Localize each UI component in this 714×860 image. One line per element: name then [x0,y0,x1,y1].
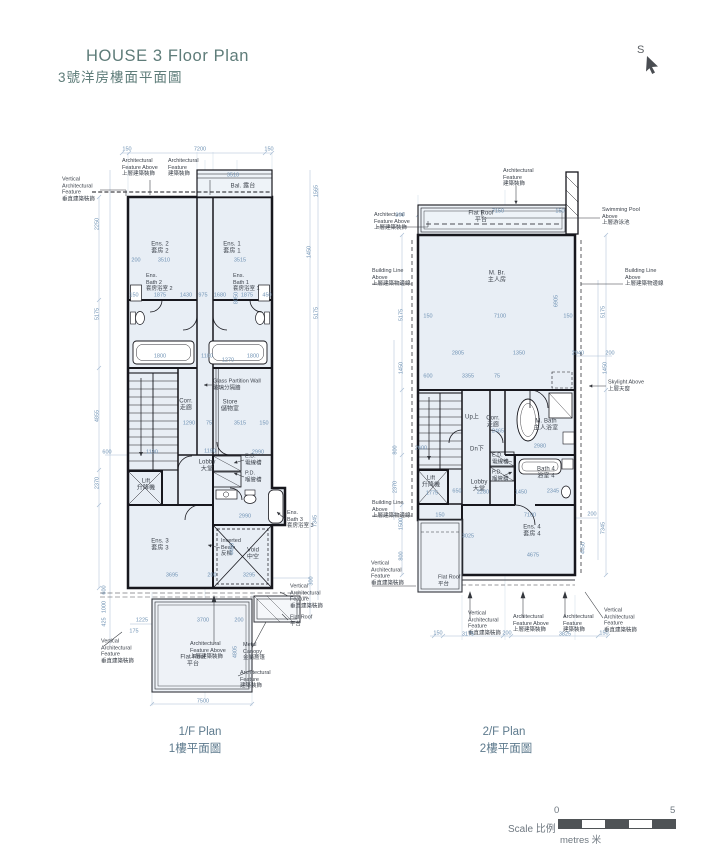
dimension-label: 75 [494,374,500,380]
plan-label: Vertical Architectural Feature 垂直建築裝飾 [604,608,637,635]
dimension-label: 1875 [241,293,253,299]
dimension-label: 425 [102,617,108,626]
scale-bar-segments [558,819,676,829]
dimension-label: 4450 [581,542,587,554]
dimension-label: 975 [198,293,207,299]
plan-label: Bath 4 浴室 4 [537,467,555,482]
plan1-caption-en: 1/F Plan [179,726,222,738]
scale-end: 5 [670,805,675,816]
dimension-label: 200 [502,631,511,637]
plan-label: Architectural Feature Above 上層建築裝飾 [122,158,158,178]
dimension-label: 6905 [554,295,560,307]
dimension-label: 4805 [233,646,239,658]
dimension-label: 3695 [166,573,178,579]
dimension-label: 3515 [234,421,246,427]
labels-overlay: Vertical Architectural Feature 垂直建築裝飾Arc… [0,0,714,860]
plan-label: M. Bath 主人浴室 [534,419,558,434]
plan-label: Architectural Feature 建築裝飾 [168,158,199,178]
plan-label: Flat Roof 平台 [438,574,460,587]
scale-segment [582,820,605,828]
dimension-label: 8050 [234,292,240,304]
dimension-label: 3175 [462,632,474,638]
plan1-caption-zh: 1樓平面圖 [169,740,221,756]
dimension-label: 2980 [534,444,546,450]
plan-label: Building Line Above 上層建築物邊線 [372,268,411,288]
dimension-label: 2280 [477,490,489,496]
scale-bar: Scale 比例 0 5 metres 米 [498,802,698,850]
plan-label: Ens. Bath 1 套房浴室 1 [233,273,260,293]
dimension-label: 7100 [524,513,536,519]
scale-start: 0 [554,805,559,816]
plan-label: Up上 [465,414,479,421]
dimension-label: 1190 [204,449,216,455]
scale-unit: metres 米 [560,832,601,846]
dimension-label: 150 [435,513,444,519]
plan-label: Dn下 [470,446,484,453]
scale-segment [629,820,652,828]
dimension-label: 3510 [227,173,239,179]
plan-label: Glass Partition Wall 玻璃分隔牆 [213,378,261,391]
scale-segment [559,820,582,828]
plan2-caption-en: 2/F Plan [483,726,526,738]
dimension-label: 150 [563,314,572,320]
dimension-label: 1500 [399,518,405,530]
plan-label: Metal Canopy 金屬簷篷 [243,642,265,662]
plan-label: Ens. 3 套房 3 [151,539,169,554]
plan-label: Skylight Above 上層天窗 [608,379,644,392]
dimension-label: 150 [129,293,138,299]
dimension-label: 150 [423,314,432,320]
dimension-label: 600 [102,585,108,594]
dimension-label: 2250 [95,218,101,230]
dimension-label: 3700 [197,618,209,624]
dimension-label: 1775 [426,491,438,497]
plan-label: Ens. 2 套房 2 [151,242,169,257]
dimension-label: 200 [395,213,404,219]
plan-label: P.D. 喉管槽 [492,469,509,482]
dimension-label: 2345 [547,489,559,495]
dimension-label: 300 [309,576,315,585]
dimension-label: 4450 [230,543,236,555]
dimension-label: 1800 [247,354,259,360]
plan-label: Flat Roof 平台 [468,211,493,226]
plan-label: Store 儲物室 [221,400,239,415]
plan-label: Building Line Above 上層建築物邊線 [625,268,664,288]
dimension-label: 175 [129,629,138,635]
dimension-label: 800 [393,445,399,454]
dimension-label: 7200 [194,147,206,153]
dimension-label: 1450 [515,490,527,496]
plan-label: Ens. 1 套房 1 [223,242,241,257]
dimension-label: 1290 [183,421,195,427]
dimension-label: 650 [452,489,461,495]
dimension-label: 2940 [572,351,584,357]
dimension-label: 2370 [393,481,399,493]
dimension-label: 5175 [399,309,405,321]
dimension-label: 7345 [313,515,319,527]
dimension-label: 2990 [239,514,251,520]
dimension-label: 2600 [415,446,427,452]
scale-segment [652,820,675,828]
plan-label: E.D. 電線槽 [492,452,509,465]
dimension-label: 1270 [222,358,234,364]
dimension-label: 150 [122,147,131,153]
dimension-label: 3510 [158,258,170,264]
plan-label: Architectural Feature 建築裝飾 [503,168,534,188]
dimension-label: 3825 [559,632,571,638]
dimension-label: 3515 [234,258,246,264]
plan-label: Architectural Feature Above 上層建築裝飾 [513,614,549,634]
plan-label: Swimming Pool Above 上層游泳池 [602,207,640,227]
dimension-label: 1190 [146,450,158,456]
dimension-label: 5175 [601,306,607,318]
plan-label: Vertical Architectural Feature 垂直建築裝飾 [290,584,323,611]
dimension-label: 1225 [136,618,148,624]
dimension-label: 4855 [95,410,101,422]
plan-label: Vertical Architectural Feature 垂直建築裝飾 [62,177,95,204]
dimension-label: 7100 [494,314,506,320]
plan-label: Vertical Architectural Feature 垂直建築裝飾 [371,561,404,588]
plan-label: M. Br. 主人房 [488,271,506,286]
plan-label: Flat Roof 平台 [290,614,312,627]
plan-label: Architectural Feature 建築裝飾 [240,670,271,690]
dimension-label: 150 [259,421,268,427]
plan-label: Ens. Bath 3 套房浴室 3 [287,510,314,530]
dimension-label: 1565 [314,185,320,197]
dimension-label: 1450 [399,362,405,374]
plan-label: Lobby 大堂 [199,460,216,475]
dimension-label: 75 [206,421,212,427]
dimension-label: 5175 [95,308,101,320]
dimension-label: 450 [262,293,271,299]
plan-label: Bal. 露台 [231,183,256,190]
dimension-label: 200 [131,258,140,264]
dimension-label: 7150 [492,209,504,215]
dimension-label: 200 [207,573,216,579]
dimension-label: 1680 [214,293,226,299]
plan-label: Void 中空 [247,548,259,563]
dimension-label: 1875 [154,293,166,299]
dimension-label: 1430 [180,293,192,299]
dimension-label: 150 [555,209,564,215]
dimension-label: 1000 [102,601,108,613]
dimension-label: 200 [605,351,614,357]
scale-label: Scale 比例 [508,820,556,835]
plan-label: Corr. 走廊 [179,399,193,414]
plan-label: Ens. 4 套房 4 [523,525,541,540]
dimension-label: 1800 [154,354,166,360]
dimension-label: 2990 [252,450,264,456]
dimension-label: 7500 [197,699,209,705]
dimension-label: 2805 [452,351,464,357]
dimension-label: 2370 [95,477,101,489]
scale-segment [605,820,628,828]
plan-label: Ens. Bath 2 套房浴室 2 [146,273,173,293]
dimension-label: 3295 [243,573,255,579]
dimension-label: 4675 [527,553,539,559]
dimension-label: 5175 [314,307,320,319]
dimension-label: 200 [587,512,596,518]
plan-label: Vertical Architectural Feature 垂直建築裝飾 [101,639,134,666]
dimension-label: 150 [433,631,442,637]
dimension-label: 1100 [201,354,213,360]
plan-label: Lift 升降機 [422,476,440,491]
dimension-label: 2465 [492,429,504,435]
plan2-caption-zh: 2樓平面圖 [480,740,532,756]
dimension-label: 150 [599,631,608,637]
dimension-label: 1350 [513,351,525,357]
dimension-label: 3025 [462,534,474,540]
dimension-label: 7345 [601,522,607,534]
plan-label: P.D. 喉管槽 [245,470,262,483]
dimension-label: 800 [399,551,405,560]
dimension-label: 600 [102,450,111,456]
brochure-page: HOUSE 3 Floor Plan 3號洋房樓面平面圖 S [0,0,714,860]
dimension-label: 1450 [307,246,313,258]
dimension-label: 150 [264,147,273,153]
dimension-label: 600 [423,374,432,380]
plan-label: Architectural Feature Above 上層建築裝飾 [190,641,226,661]
plan-label: Lift 升降機 [137,479,155,494]
dimension-label: 1450 [603,362,609,374]
dimension-label: 3355 [462,374,474,380]
dimension-label: 200 [234,618,243,624]
